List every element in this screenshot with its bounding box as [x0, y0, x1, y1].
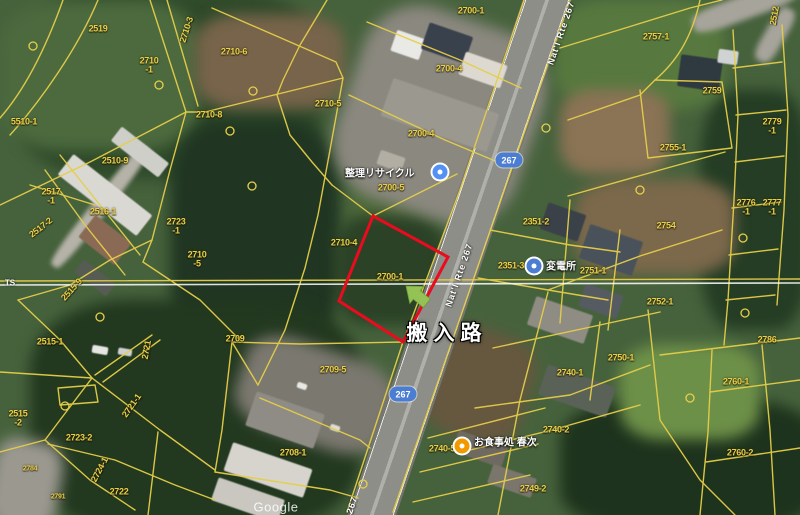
google-watermark: Google	[254, 500, 299, 515]
parcel-boundary-lines	[0, 0, 800, 515]
survey-point-markers	[29, 42, 749, 488]
access-road-annotation: 搬入路	[407, 317, 488, 347]
route-267-shield: 267	[496, 153, 523, 168]
poi-label[interactable]: 整理リサイクル	[345, 165, 415, 180]
poi-label[interactable]: お食事処 春次	[474, 434, 537, 449]
recycle-poi-icon[interactable]	[433, 165, 448, 180]
route-267-shield: 267	[390, 387, 417, 402]
survey-mark-label: TS	[5, 279, 15, 288]
cadastral-overlay	[0, 0, 800, 515]
map-sheet-line	[0, 283, 800, 285]
poi-label[interactable]: 変電所	[546, 258, 576, 273]
restaurant-poi-icon[interactable]	[455, 439, 470, 454]
access-arrow-icon	[406, 286, 430, 308]
power-poi-icon[interactable]	[527, 259, 542, 274]
map-canvas[interactable]: 2519 2710-3 2710-6 2710 -1 2710-8 2710-5…	[0, 0, 800, 515]
